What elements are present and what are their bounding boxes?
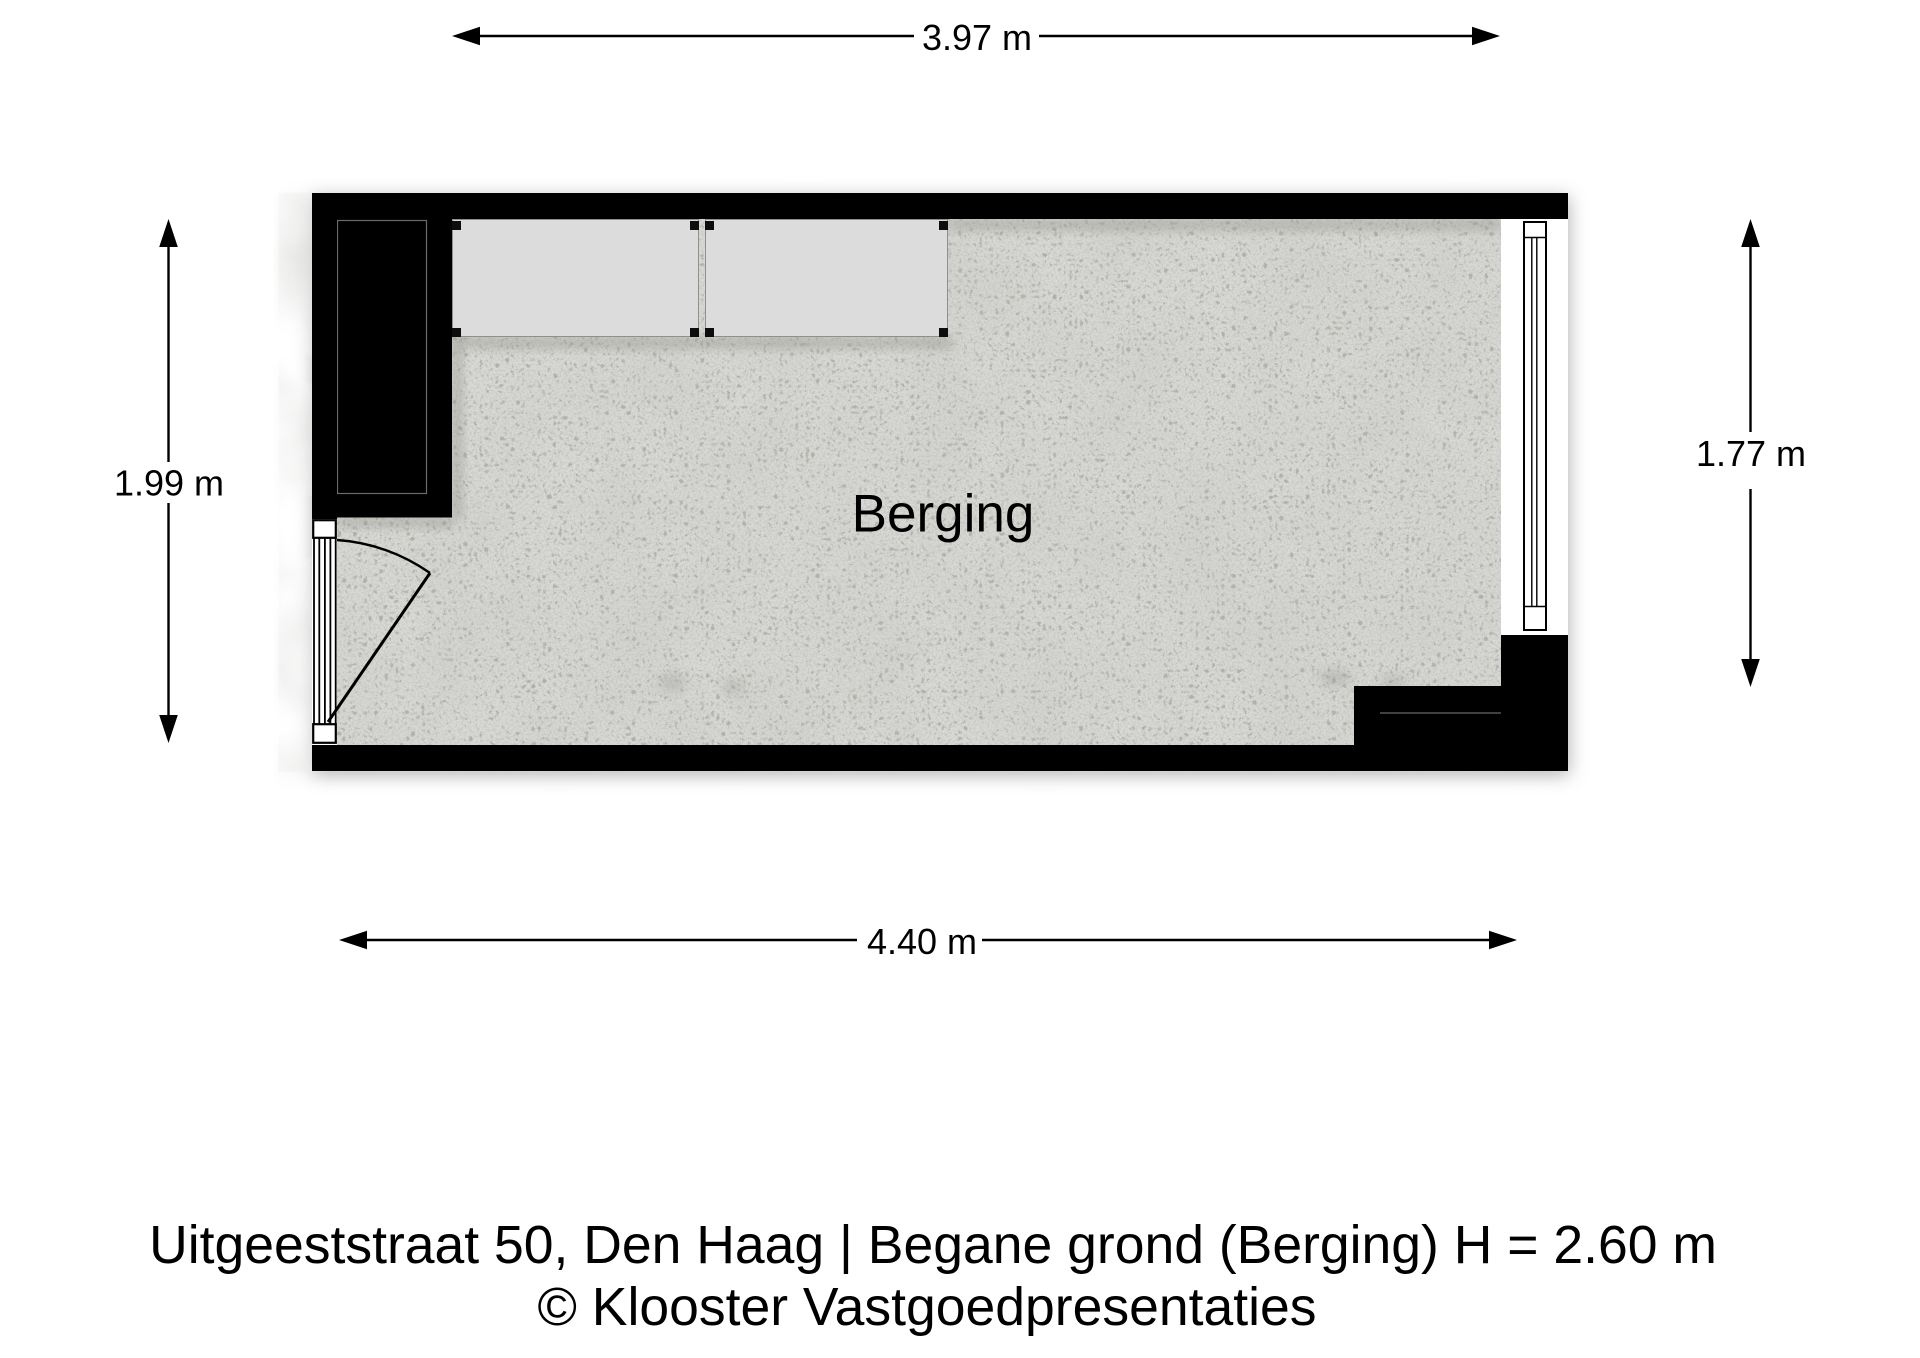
- svg-text:3.97 m: 3.97 m: [922, 17, 1032, 58]
- svg-text:Berging: Berging: [852, 485, 1035, 544]
- svg-text:1.99 m: 1.99 m: [114, 463, 224, 504]
- svg-text:Uitgeeststraat 50, Den Haag |: Uitgeeststraat 50, Den Haag | Begane gro…: [149, 1216, 1717, 1275]
- svg-text:© Klooster Vastgoedpresentatie: © Klooster Vastgoedpresentaties: [538, 1278, 1317, 1337]
- svg-text:4.40 m: 4.40 m: [867, 921, 977, 962]
- svg-text:1.77 m: 1.77 m: [1696, 433, 1806, 474]
